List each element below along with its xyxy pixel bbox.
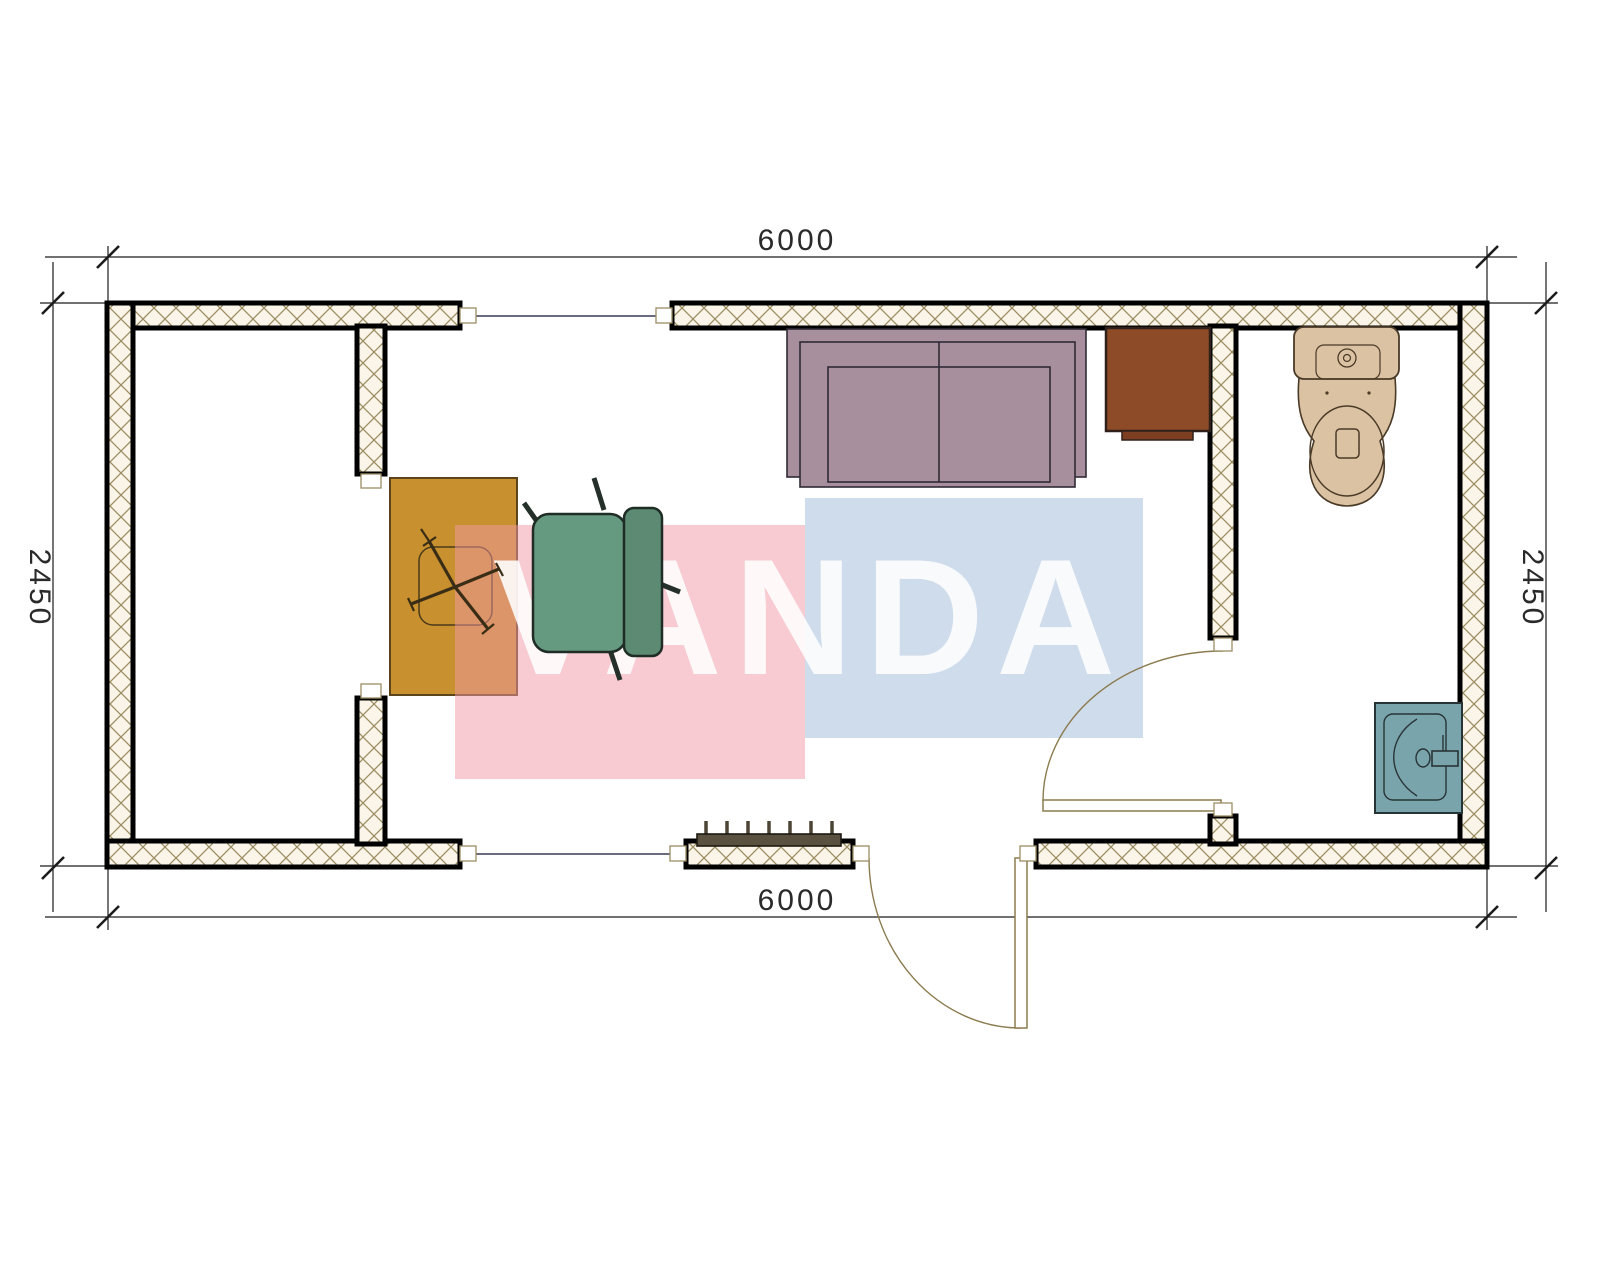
partition-left-top xyxy=(357,326,385,474)
floor-plan-drawing: 6000 6000 2450 2450 VANDA xyxy=(0,0,1600,1280)
entrance-door-leaf xyxy=(1015,858,1027,1028)
wall-left xyxy=(107,303,133,867)
chair-seat xyxy=(533,514,626,652)
entrance-door-arc xyxy=(869,858,1021,1028)
radiator xyxy=(697,821,841,846)
toilet-tank xyxy=(1294,327,1399,379)
wall-right xyxy=(1460,303,1487,867)
partition-left-bottom xyxy=(357,698,385,844)
dimension-label-right: 2450 xyxy=(1516,549,1549,628)
wall-top-main xyxy=(672,303,1487,328)
sink xyxy=(1375,703,1462,813)
bathroom-door-leaf xyxy=(1043,800,1221,811)
wall-bottom-right xyxy=(1036,841,1487,867)
wall-bottom-left xyxy=(107,841,460,867)
sink-tap xyxy=(1432,751,1458,766)
chair-backrest xyxy=(624,508,662,656)
cabinet-tray xyxy=(1122,431,1193,440)
radiator-body xyxy=(697,834,841,846)
wall-top-left xyxy=(107,303,460,328)
partition-bathroom-stub xyxy=(1210,816,1236,844)
sofa xyxy=(787,329,1086,487)
dimension-label-left: 2450 xyxy=(23,549,56,628)
dimension-label-bottom: 6000 xyxy=(758,884,837,917)
partition-bathroom xyxy=(1210,326,1236,638)
floor-plan-page: 6000 6000 2450 2450 VANDA xyxy=(0,0,1600,1280)
tv-cabinet xyxy=(1106,328,1210,440)
toilet-drain xyxy=(1336,429,1359,458)
cabinet-top xyxy=(1106,328,1210,431)
dimension-label-top: 6000 xyxy=(758,224,837,257)
toilet xyxy=(1294,327,1399,506)
